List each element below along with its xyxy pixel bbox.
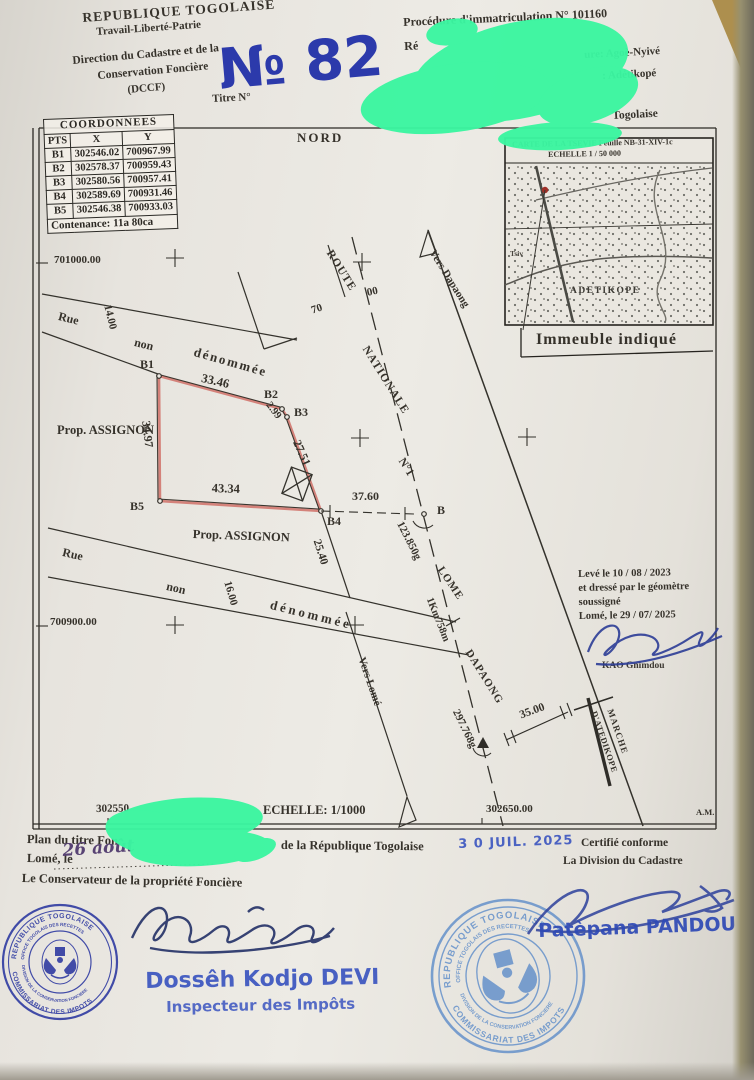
parcel-dim-b4b5: 43.34 bbox=[212, 482, 241, 496]
map-village-label: Tsiv bbox=[510, 250, 523, 258]
map-caption: Immeuble indiqué bbox=[536, 332, 677, 349]
inspector-title: Inspecteur des Impôts bbox=[166, 997, 355, 1016]
survey-note-line2: et dressé par le géomètre bbox=[578, 580, 689, 596]
gridline-east-value: 302650.00 bbox=[486, 804, 533, 816]
survey-note-line4: Lomé, le 29 / 07/ 2025 bbox=[579, 608, 690, 624]
map-town-label: ADETIKOPE bbox=[570, 287, 641, 297]
gridline-west-value: 302550 bbox=[96, 803, 129, 815]
point-label-b: B bbox=[437, 504, 445, 517]
corner-initials: A.M. bbox=[696, 808, 714, 817]
map-inset-scale: ECHELLE 1 / 50 000 bbox=[548, 150, 621, 160]
registration-line2-fragment: Ré bbox=[404, 39, 419, 52]
coordinates-table: COORDONNEES PTS X Y B1302546.02700967.99… bbox=[43, 114, 178, 234]
point-label-b1: B1 bbox=[140, 358, 154, 371]
point-label-b4: B4 bbox=[327, 515, 341, 528]
north-label: NORD bbox=[297, 131, 343, 145]
col-header-pts: PTS bbox=[44, 133, 71, 148]
tie-dim-37-60: 37.60 bbox=[352, 490, 379, 503]
gridline-south-value: 700900.00 bbox=[50, 617, 97, 629]
inspector-name: Dossêh Kodjo DEVI bbox=[145, 966, 380, 993]
surveyor-name: KAO Gnimdou bbox=[602, 662, 665, 672]
survey-note: Levé le 10 / 08 / 2023 et dressé par le … bbox=[578, 566, 690, 624]
point-label-b2: B2 bbox=[264, 388, 278, 401]
certify-line1: Certifié conforme bbox=[581, 837, 668, 849]
point-label-b5: B5 bbox=[130, 500, 144, 513]
certify-line2: La Division du Cadastre bbox=[563, 855, 683, 867]
scanned-cadastral-document: REPUBLIQUE TOGOLAISE Travail-Liberté-Pat… bbox=[0, 0, 754, 1080]
footer-plan-line-right: de la République Togolaise bbox=[281, 839, 424, 853]
point-label-b3: B3 bbox=[294, 406, 308, 419]
plan-scale-label: ECHELLE: 1/1000 bbox=[263, 804, 365, 817]
titre-no-label: Titre N° bbox=[212, 92, 251, 106]
title-number-handwritten: № 82 bbox=[216, 28, 385, 101]
road-chainage-00: 00 bbox=[366, 286, 379, 300]
gridline-north-value: 701000.00 bbox=[54, 255, 101, 267]
photo-bottom-edge bbox=[0, 1062, 754, 1080]
registration-togolaise-fragment: Togolaise bbox=[612, 108, 658, 122]
photo-right-edge bbox=[732, 0, 754, 1080]
parcel-dim-b5b1: 34.97 bbox=[140, 420, 156, 448]
